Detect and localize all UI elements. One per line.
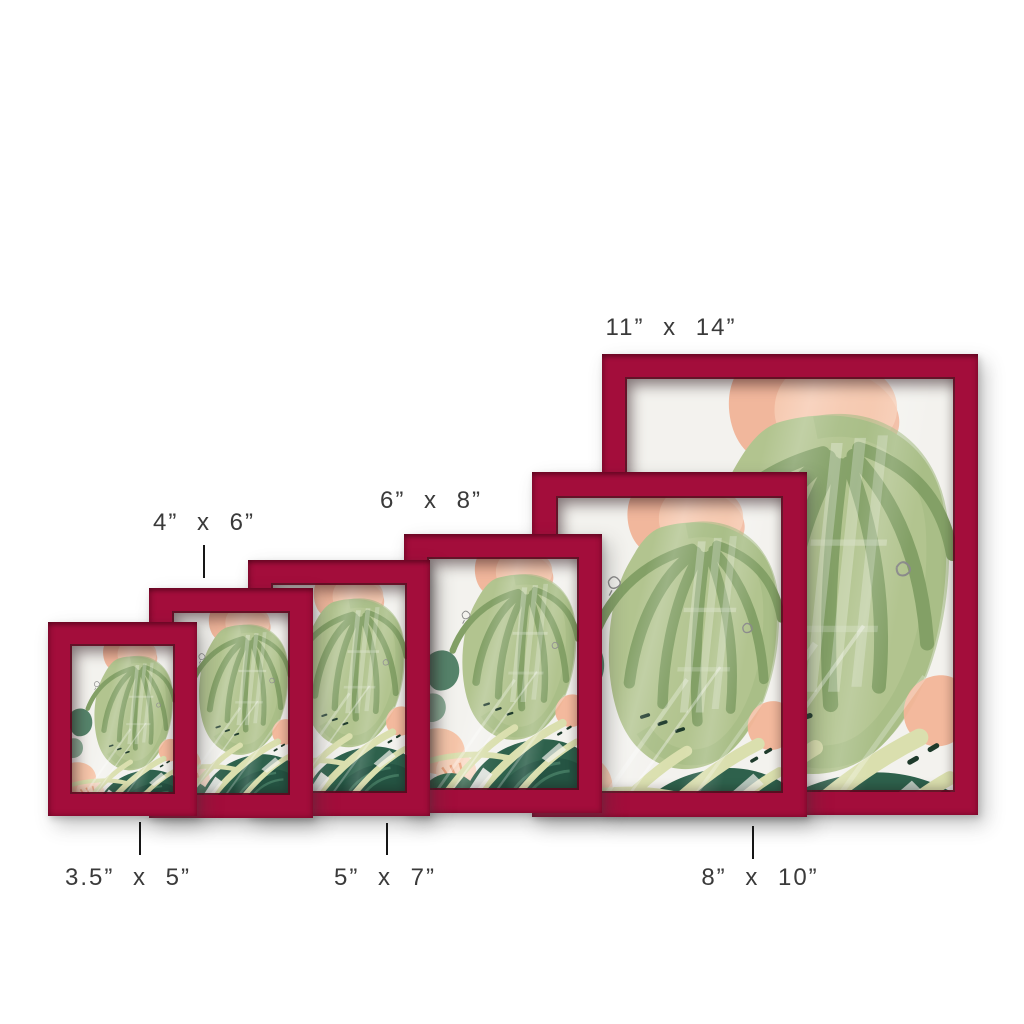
botanical-artwork bbox=[427, 557, 579, 790]
picture-frame-6x8 bbox=[404, 534, 602, 813]
tick-mark-5x7 bbox=[386, 823, 388, 855]
size-label-6x8: 6” x 8” bbox=[380, 487, 482, 515]
tick-mark-8x10 bbox=[752, 826, 754, 859]
tick-mark-3.5x5 bbox=[139, 822, 141, 855]
size-label-4x6: 4” x 6” bbox=[153, 509, 255, 537]
size-label-8x10: 8” x 10” bbox=[701, 864, 818, 892]
picture-frame-3.5x5 bbox=[48, 622, 197, 816]
frame-window bbox=[427, 557, 579, 790]
product-image-frame-size-comparison: 3.5” x 5” 4” x 6” 5” x 7” 6” x 8” 8” x 1… bbox=[0, 0, 1024, 1024]
frame-window bbox=[70, 644, 175, 794]
size-label-3.5x5: 3.5” x 5” bbox=[65, 864, 191, 892]
tick-mark-4x6 bbox=[203, 545, 205, 578]
size-label-5x7: 5” x 7” bbox=[334, 864, 436, 892]
size-label-11x14: 11” x 14” bbox=[606, 314, 737, 342]
botanical-artwork bbox=[70, 644, 175, 794]
